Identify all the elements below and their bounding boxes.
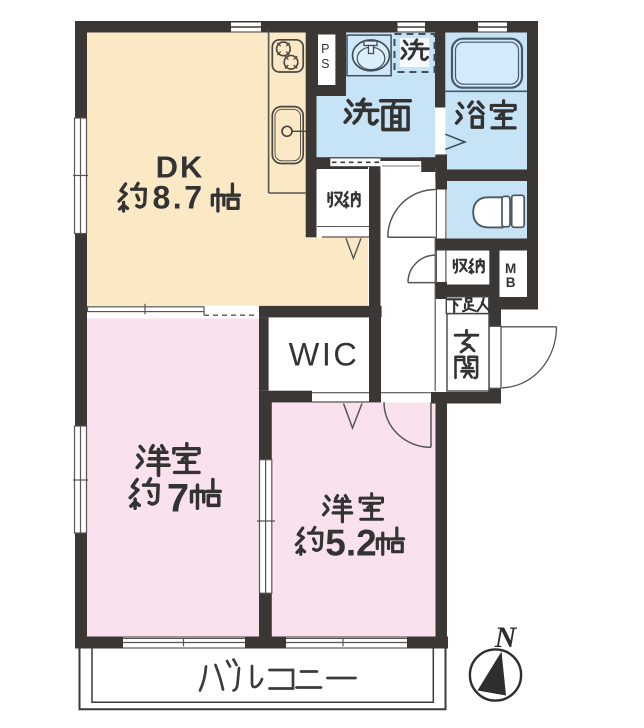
svg-text:5.2: 5.2 (325, 523, 376, 564)
svg-text:WIC: WIC (289, 337, 360, 373)
svg-text:M: M (505, 261, 516, 276)
svg-text:N: N (494, 621, 518, 654)
svg-text:S: S (321, 57, 329, 71)
svg-text:7: 7 (167, 477, 189, 521)
svg-text:P: P (321, 42, 329, 56)
svg-text:8.7: 8.7 (153, 180, 205, 216)
svg-text:B: B (506, 275, 516, 290)
